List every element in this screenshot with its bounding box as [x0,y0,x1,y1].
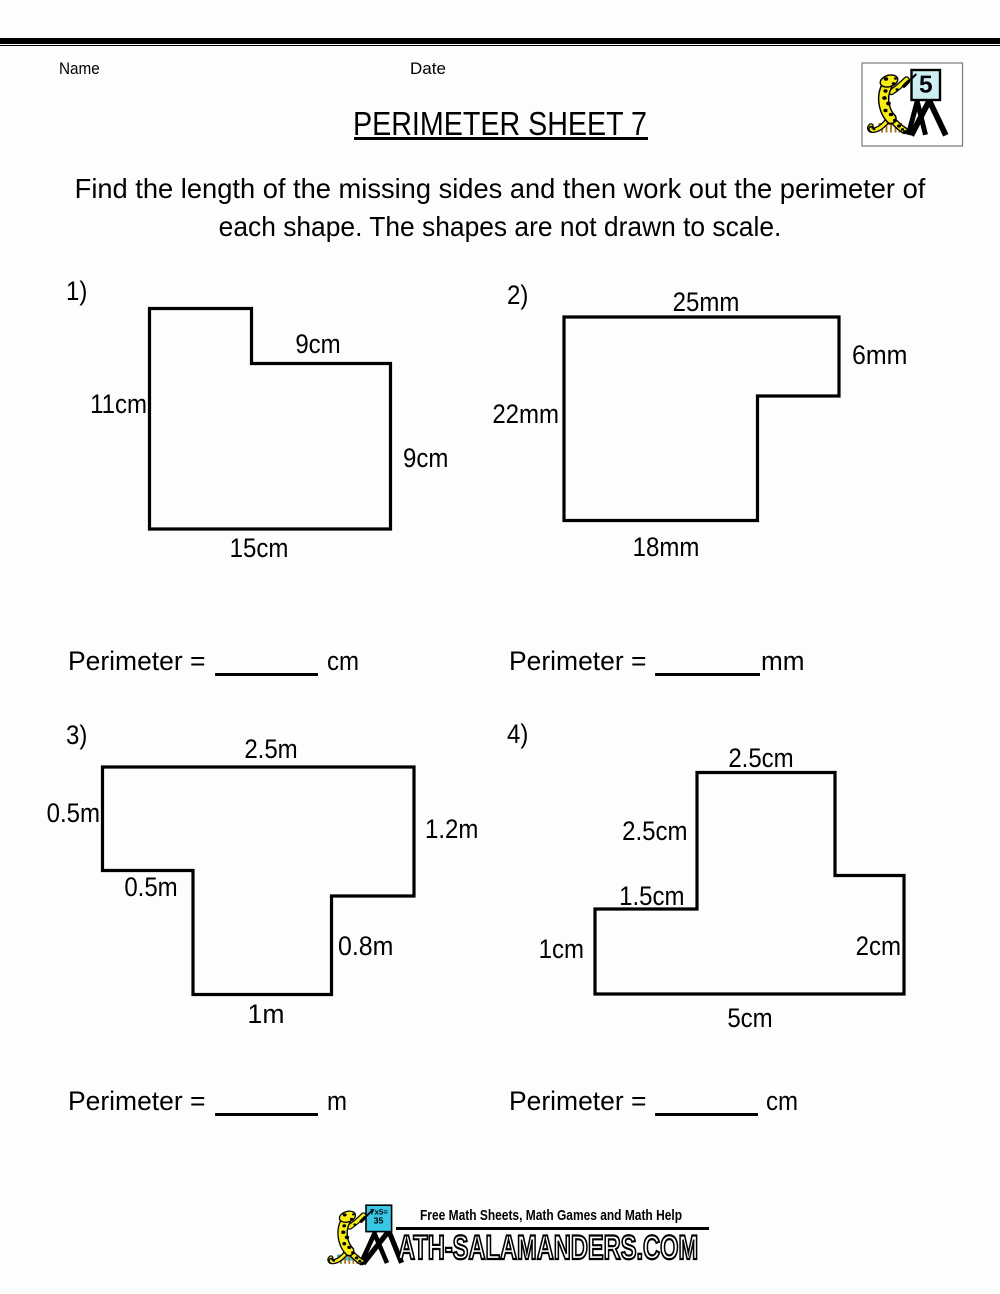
svg-text:5: 5 [919,72,933,99]
svg-text:35: 35 [374,1216,384,1226]
